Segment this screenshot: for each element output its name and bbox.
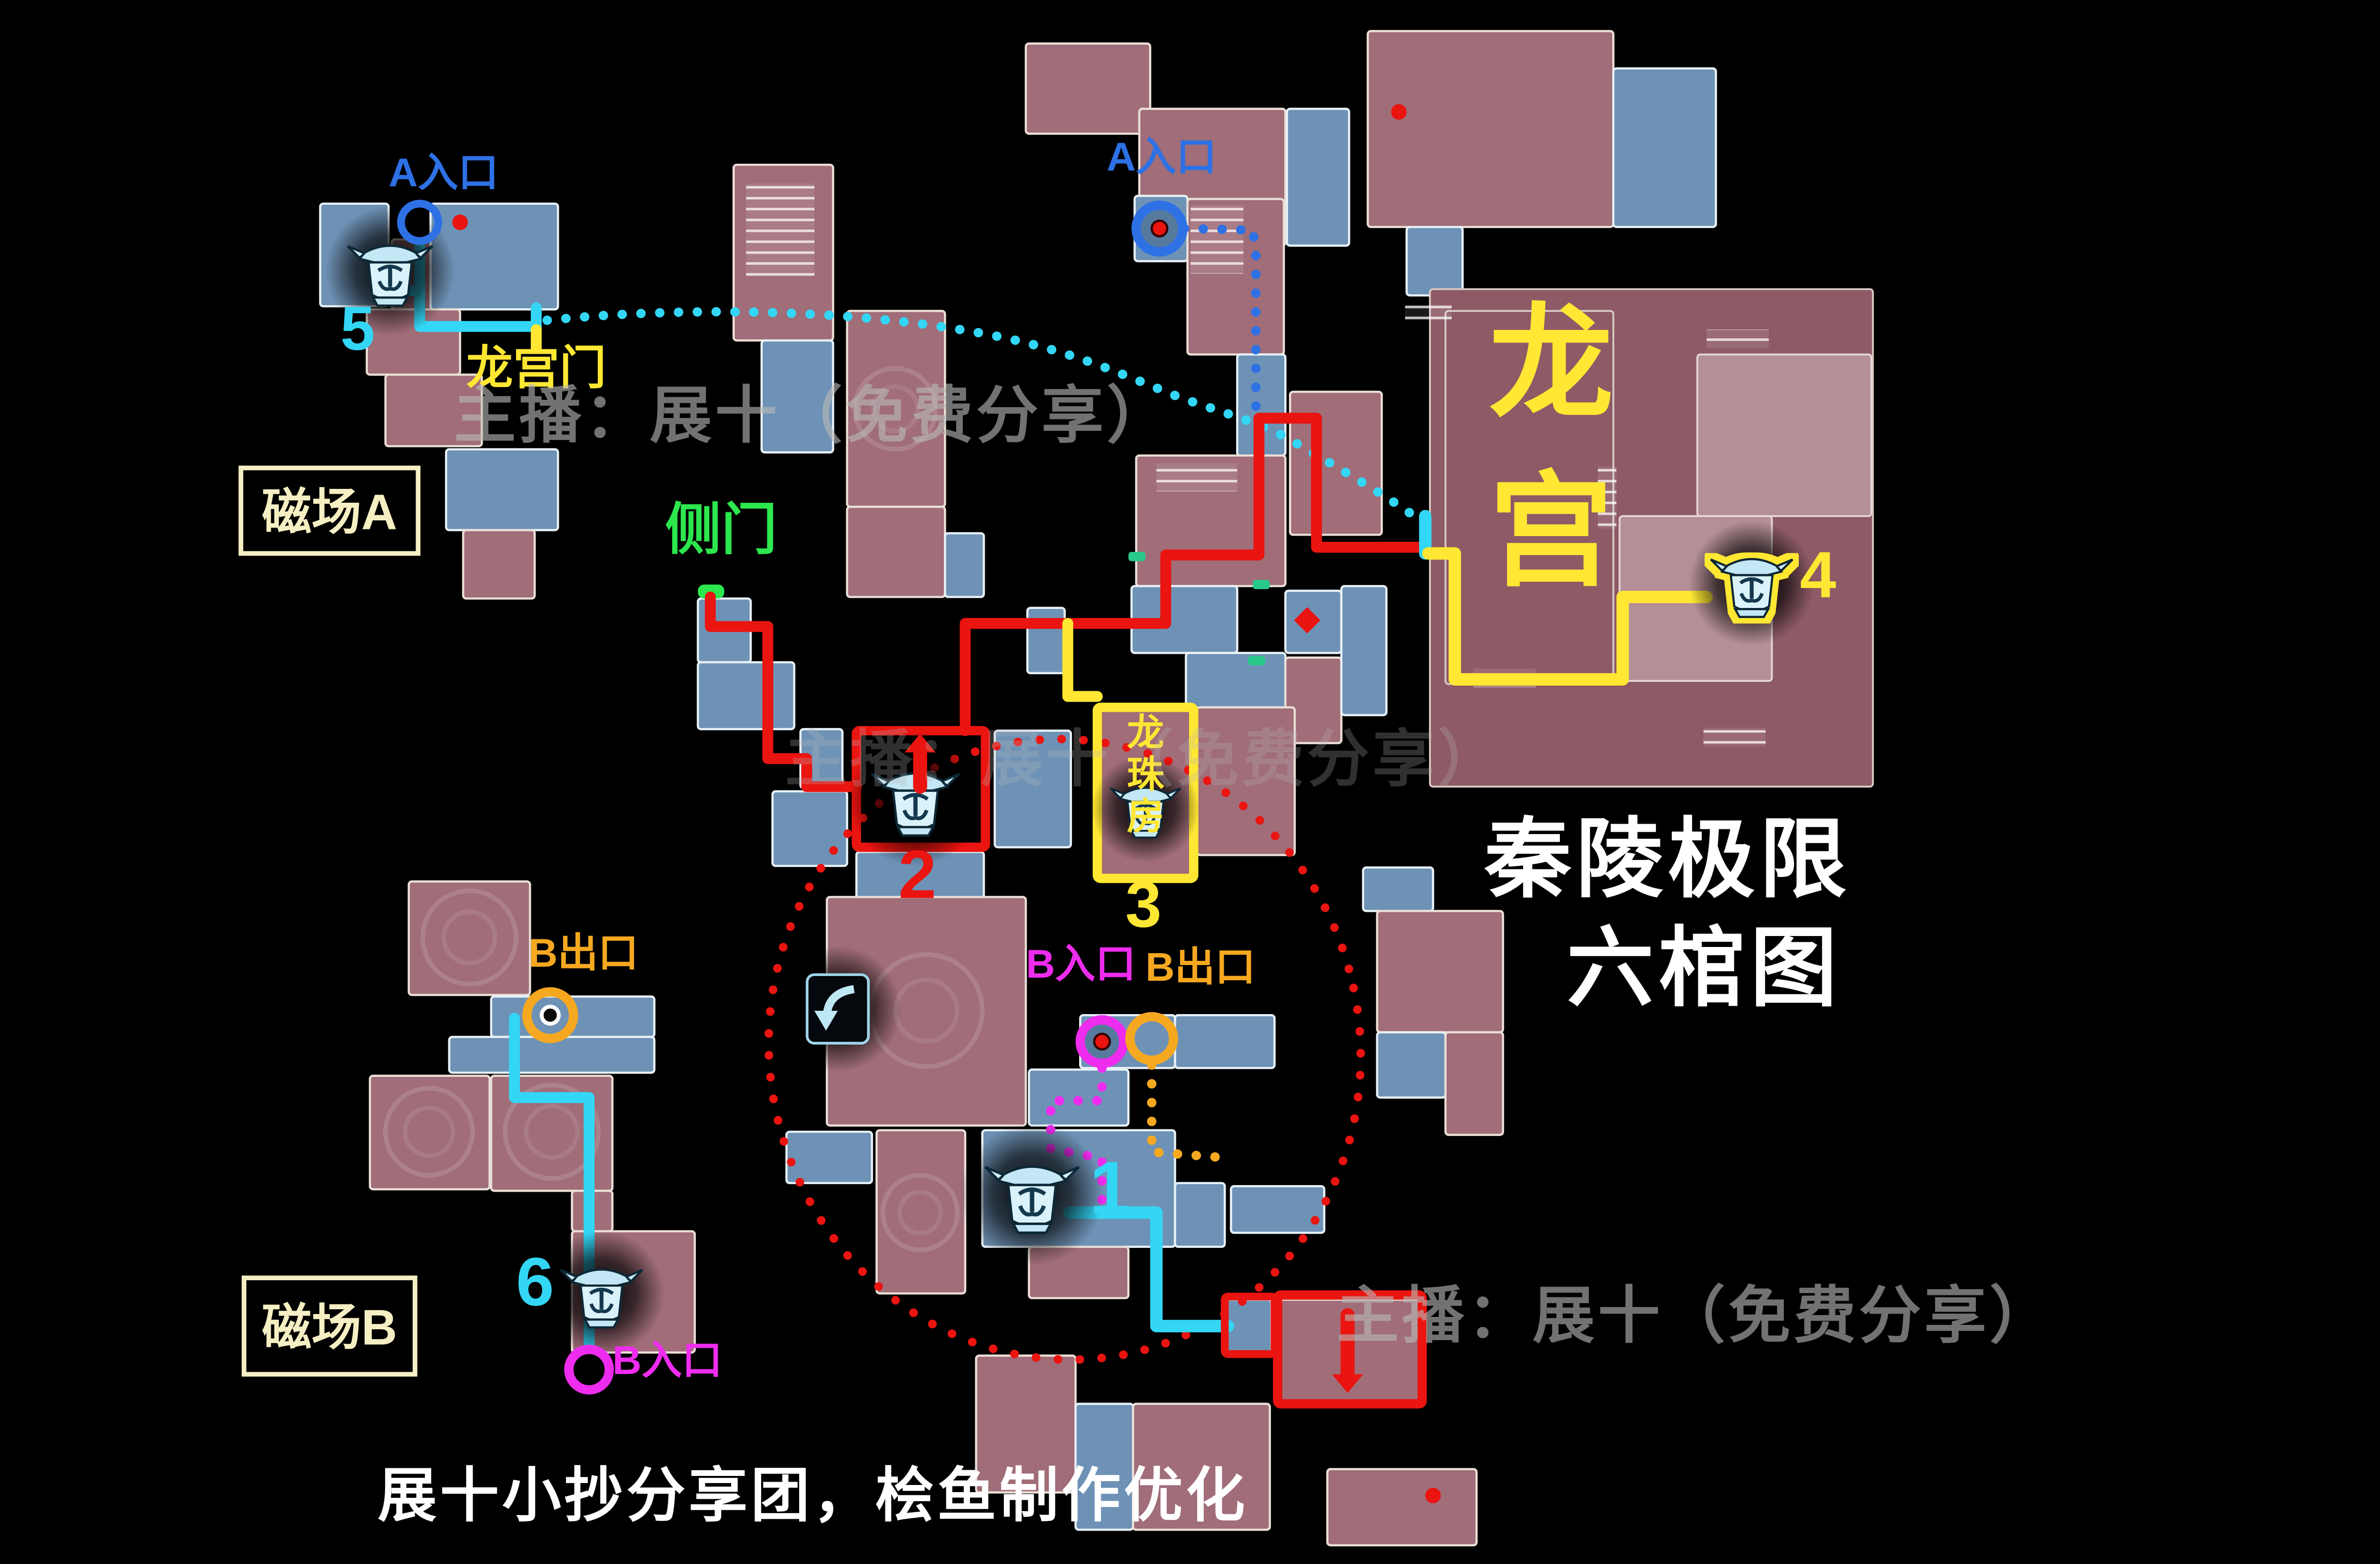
map-room (1175, 1015, 1275, 1068)
map-room (1287, 109, 1349, 246)
label-side-door: 侧门 (665, 498, 777, 561)
map-room (1328, 1469, 1477, 1545)
label-a-entrance-2: A入口 (1107, 134, 1217, 179)
label-a-entrance-1: A入口 (388, 149, 498, 195)
stairs-texture (746, 183, 814, 277)
map-room (1697, 354, 1872, 516)
coffin-number-3: 3 (1125, 868, 1161, 941)
door-marker (1248, 656, 1265, 666)
watermark-top: 主播：展十（免费分享） (454, 384, 1172, 449)
map-canvas: 523416A入口A入口龙宫门侧门B出口B入口B出口B入口龙宫磁场A磁场B龙珠房… (0, 0, 2380, 1564)
map-room (877, 1130, 965, 1294)
map-room (1341, 586, 1387, 715)
stairs-texture (1704, 727, 1766, 746)
red-dot-marker (1425, 1488, 1441, 1504)
map-room (945, 533, 984, 597)
entry-point-icon (1152, 221, 1168, 237)
label-b-entrance-1: B入口 (613, 1337, 723, 1383)
footer-credit: 展十小抄分享团，桧鱼制作优化 (377, 1467, 1248, 1529)
map-room (1368, 31, 1613, 227)
coffin-number-2: 2 (898, 837, 936, 913)
map-room (446, 449, 558, 530)
stairs-texture (1156, 463, 1237, 491)
stairs-texture (1190, 205, 1243, 274)
map-room (1027, 608, 1064, 673)
stairs-texture (1706, 329, 1769, 348)
label-b-exit-1: B出口 (528, 930, 638, 976)
label-palace-char-2: 宫 (1489, 463, 1613, 601)
route-yellow-branch (1068, 623, 1097, 696)
label-palace-char-1: 龙 (1489, 295, 1613, 433)
map-room (1175, 1183, 1225, 1247)
label-b-exit-2: B出口 (1146, 944, 1256, 989)
exit-hole-icon (542, 1006, 559, 1024)
coffin-number-6: 6 (516, 1244, 554, 1320)
coffin-number-5: 5 (340, 293, 375, 363)
map-room (698, 662, 794, 729)
map-room (1363, 867, 1433, 911)
label-field-a: 磁场A (262, 484, 397, 540)
map-room (1407, 227, 1463, 296)
coffin-number-1: 1 (1090, 1146, 1131, 1230)
label-field-b: 磁场B (262, 1300, 397, 1355)
map-room (847, 507, 945, 597)
map-room (1446, 1032, 1503, 1135)
door-marker (1129, 552, 1146, 561)
stairs-texture (1405, 305, 1452, 320)
page-title-line1: 秦陵极限 (1484, 815, 1851, 906)
map-room (1613, 69, 1716, 227)
entry-point-icon (1094, 1034, 1110, 1049)
red-dot-marker (452, 215, 468, 230)
label-b-entrance-2: B入口 (1026, 941, 1136, 986)
door-marker (1253, 580, 1270, 589)
ring-b-entrance-1 (569, 1349, 609, 1390)
map-room (463, 530, 535, 598)
map-room (773, 791, 847, 866)
watermark-bottom-right: 主播：展十（免费分享） (1337, 1284, 2055, 1349)
red-dot-marker (1391, 104, 1407, 120)
label-dragon-pearl-room-char-3: 房 (1127, 796, 1164, 837)
map-room (1377, 911, 1503, 1032)
map-room (1377, 1032, 1446, 1097)
map-room (1026, 43, 1150, 133)
watermark-center: 主播：展十（免费分享） (785, 727, 1503, 793)
page-title-line2: 六棺图 (1567, 924, 1842, 1015)
map-room (786, 1132, 872, 1183)
map-room (409, 881, 530, 995)
coffin-number-4: 4 (1800, 538, 1836, 611)
map-room (1231, 1186, 1324, 1233)
room-exit-icon (807, 975, 869, 1043)
